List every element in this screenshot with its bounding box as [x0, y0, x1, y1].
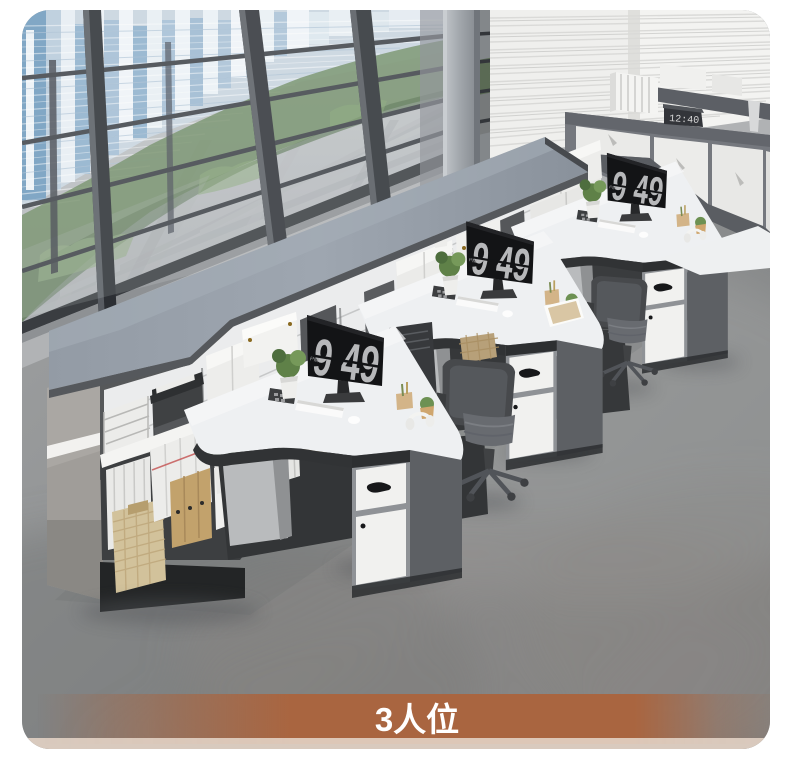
svg-text:12:40: 12:40: [669, 114, 700, 127]
svg-text:3人位: 3人位: [375, 701, 459, 738]
